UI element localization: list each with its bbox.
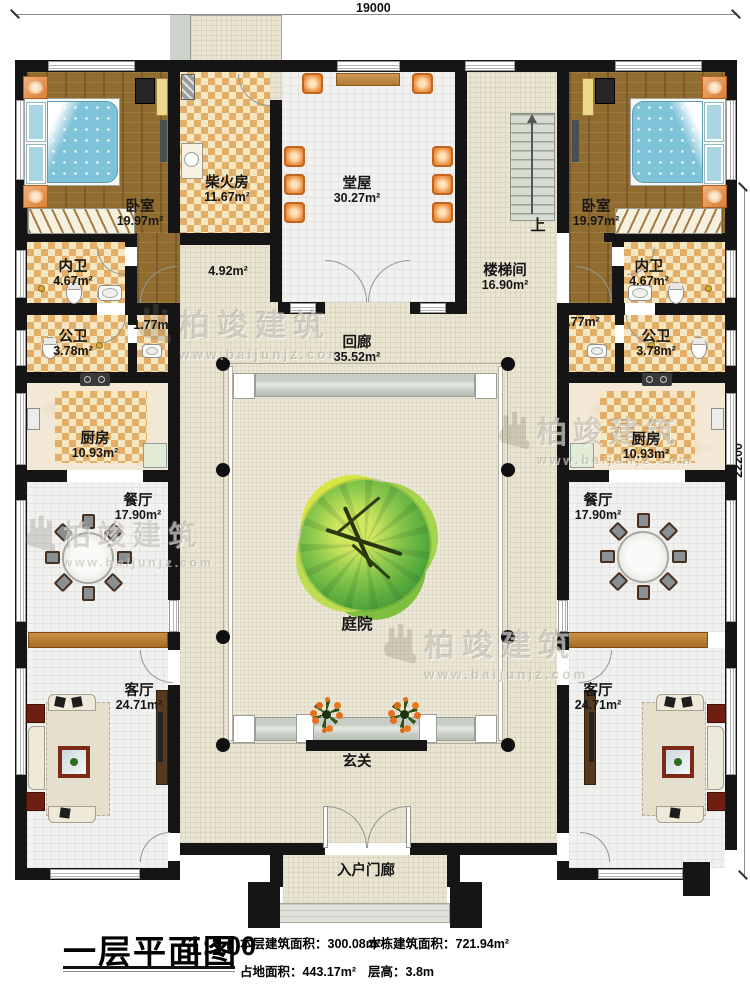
room-area: 17.90m² bbox=[115, 509, 162, 522]
stairs-up-label: 上 bbox=[530, 218, 545, 233]
room-name: 内卫 bbox=[53, 260, 93, 275]
nightstand bbox=[23, 76, 48, 99]
dimension-tick bbox=[738, 870, 748, 880]
side-table bbox=[26, 704, 45, 723]
room-name: 卧室 bbox=[573, 200, 620, 215]
potted-plant bbox=[306, 692, 346, 738]
room-label-foyer: 玄关 bbox=[343, 755, 372, 770]
room-label-dining-right: 餐厅 17.90m² bbox=[575, 494, 622, 522]
stat-value: 721.94m² bbox=[456, 937, 510, 951]
tv bbox=[572, 120, 579, 162]
window bbox=[726, 330, 736, 366]
porch-wall bbox=[447, 843, 460, 887]
sideboard-left bbox=[28, 632, 168, 648]
towel-hook bbox=[38, 285, 45, 292]
room-name: 厨房 bbox=[72, 432, 119, 447]
room-area: 3.78m² bbox=[636, 345, 676, 358]
wall bbox=[168, 685, 180, 833]
room-label-stairwell: 楼梯间 16.90m² bbox=[482, 264, 529, 292]
room-name: 公卫 bbox=[53, 330, 93, 345]
dimension-tick bbox=[738, 182, 748, 192]
sink bbox=[142, 344, 162, 358]
tv bbox=[589, 712, 594, 762]
room-label-hall: 堂屋 30.27m² bbox=[334, 177, 381, 205]
room-name: 餐厅 bbox=[115, 494, 162, 509]
sofa-pillow bbox=[664, 696, 676, 708]
window bbox=[726, 100, 736, 180]
firewood-sink bbox=[184, 152, 199, 167]
sofa-pillow bbox=[71, 696, 83, 708]
wall bbox=[125, 233, 137, 247]
counter bbox=[711, 408, 724, 430]
burner bbox=[646, 376, 653, 383]
terrace-pad bbox=[475, 373, 497, 399]
bed-pillow bbox=[705, 145, 723, 183]
room-area: 17.90m² bbox=[575, 509, 622, 522]
wall bbox=[683, 862, 710, 896]
column bbox=[501, 357, 515, 371]
stat-land-area: 占地面积：443.17m² bbox=[240, 961, 356, 980]
side-table bbox=[707, 704, 726, 723]
room-label-living-left: 客厅 24.71m² bbox=[116, 684, 163, 712]
room-area: 16.90m² bbox=[482, 279, 529, 292]
dining-table bbox=[62, 532, 114, 584]
foyer-threshold bbox=[306, 740, 427, 751]
dining-chair bbox=[45, 551, 60, 564]
window bbox=[726, 393, 736, 465]
wall bbox=[15, 303, 97, 315]
room-area: 30.27m² bbox=[334, 192, 381, 205]
room-area: 4.67m² bbox=[53, 275, 93, 288]
wall bbox=[180, 843, 325, 855]
window bbox=[169, 600, 179, 632]
courtyard-tree bbox=[300, 480, 430, 610]
hall-chair bbox=[284, 202, 305, 223]
courtyard-edge-right bbox=[498, 366, 503, 741]
shelf bbox=[582, 78, 594, 116]
wall bbox=[270, 100, 282, 302]
dining-chair bbox=[82, 514, 95, 529]
window bbox=[598, 869, 683, 879]
column bbox=[216, 463, 230, 477]
room-area: 3.78m² bbox=[53, 345, 93, 358]
bed-pillow bbox=[705, 103, 723, 141]
room-label-cloister: 回廊 35.52m² bbox=[334, 336, 381, 364]
wall bbox=[127, 303, 180, 315]
terrace-pad bbox=[475, 715, 497, 743]
column bbox=[501, 738, 515, 752]
altar-table bbox=[336, 73, 400, 86]
dresser bbox=[135, 78, 155, 104]
room-name: 堂屋 bbox=[334, 177, 381, 192]
burner bbox=[84, 376, 91, 383]
room-area: 19.97m² bbox=[117, 215, 164, 228]
potted-plant bbox=[384, 692, 424, 738]
sofa-pillow bbox=[681, 696, 693, 708]
nightstand bbox=[23, 185, 48, 208]
wall bbox=[557, 303, 625, 315]
side-table bbox=[26, 792, 45, 811]
dresser bbox=[595, 78, 615, 104]
room-label-public-bath-right: 公卫 3.78m² bbox=[636, 330, 676, 358]
title-underline-2 bbox=[63, 971, 235, 972]
toilet bbox=[691, 337, 707, 359]
courtyard-terrace-bottom bbox=[255, 717, 475, 741]
counter bbox=[27, 408, 40, 430]
wall bbox=[168, 861, 180, 868]
dimension-line-right bbox=[744, 188, 745, 878]
sofa-seat bbox=[48, 806, 96, 823]
room-area: 19.97m² bbox=[573, 215, 620, 228]
window bbox=[726, 500, 736, 622]
window bbox=[50, 869, 140, 879]
wall bbox=[557, 315, 569, 600]
dimension-line-top bbox=[15, 14, 737, 15]
room-name: 内卫 bbox=[629, 260, 669, 275]
appliance bbox=[181, 74, 195, 100]
column bbox=[501, 630, 515, 644]
hall-chair bbox=[432, 146, 453, 167]
stat-label: 占地面积： bbox=[240, 965, 303, 979]
burner bbox=[98, 376, 105, 383]
toilet bbox=[668, 282, 684, 304]
room-label-bedroom-left: 卧室 19.97m² bbox=[117, 200, 164, 228]
room-name: 回廊 bbox=[334, 336, 381, 351]
dining-chair bbox=[637, 585, 650, 600]
window bbox=[420, 303, 446, 313]
coffee-table bbox=[662, 746, 694, 778]
window bbox=[290, 303, 316, 313]
room-name: 卧室 bbox=[117, 200, 164, 215]
stat-label: 本栋建筑面积： bbox=[368, 937, 456, 951]
wall bbox=[168, 71, 180, 233]
wardrobe bbox=[615, 208, 722, 234]
title-underline bbox=[63, 966, 235, 969]
stat-building-area: 本栋建筑面积：721.94m² bbox=[368, 933, 509, 952]
window bbox=[726, 668, 736, 775]
plant-fruits bbox=[322, 710, 331, 719]
wall bbox=[615, 343, 624, 372]
sofa-pillow bbox=[54, 696, 66, 708]
room-name: 柴火房 bbox=[204, 176, 250, 191]
column bbox=[501, 463, 515, 477]
wall bbox=[557, 685, 569, 833]
room-area: 11.67m² bbox=[204, 191, 250, 204]
porch-steps bbox=[278, 903, 450, 923]
dining-chair bbox=[637, 513, 650, 528]
wall bbox=[685, 470, 725, 482]
sink bbox=[587, 344, 607, 358]
wall bbox=[168, 315, 180, 600]
room-name: 客厅 bbox=[575, 684, 622, 699]
coffee-table bbox=[58, 746, 90, 778]
wall bbox=[557, 861, 569, 868]
window bbox=[558, 600, 568, 632]
porch-column bbox=[248, 882, 280, 928]
room-area: 10.93m² bbox=[623, 448, 670, 461]
sink bbox=[98, 285, 122, 301]
hall-chair bbox=[302, 73, 323, 94]
room-area: 4.92m² bbox=[208, 265, 248, 278]
bed-pillow bbox=[27, 145, 45, 183]
room-area: 10.93m² bbox=[72, 447, 119, 460]
room-area: 35.52m² bbox=[334, 351, 381, 364]
room-label-pass-left: 1.77m² bbox=[133, 319, 173, 332]
room-area: 1.77m² bbox=[560, 316, 600, 329]
wall bbox=[612, 233, 624, 247]
wall bbox=[15, 470, 67, 482]
window bbox=[465, 61, 515, 71]
wall bbox=[168, 632, 180, 650]
table-plant bbox=[674, 758, 682, 766]
wall bbox=[557, 71, 569, 233]
column bbox=[216, 357, 230, 371]
sofa-seat bbox=[656, 694, 704, 711]
room-label-kitchen-left: 厨房 10.93m² bbox=[72, 432, 119, 460]
terrace-pad bbox=[233, 373, 255, 399]
towel-hook bbox=[705, 285, 712, 292]
hall-chair bbox=[412, 73, 433, 94]
bed-mattress bbox=[632, 101, 703, 183]
window bbox=[16, 500, 26, 622]
bed-mattress bbox=[47, 101, 118, 183]
room-label-firewood: 柴火房 11.67m² bbox=[204, 176, 250, 204]
plant-fruits bbox=[400, 710, 409, 719]
terrace-pad bbox=[233, 715, 255, 743]
room-area: 4.67m² bbox=[629, 275, 669, 288]
room-area: 24.71m² bbox=[116, 699, 163, 712]
fridge bbox=[570, 443, 594, 468]
dining-chair bbox=[82, 586, 95, 601]
room-label-kitchen-right: 厨房 10.93m² bbox=[623, 433, 670, 461]
wall bbox=[655, 303, 737, 315]
room-name: 楼梯间 bbox=[482, 264, 529, 279]
wall bbox=[557, 632, 569, 650]
fridge bbox=[143, 443, 167, 468]
sofa-pillow bbox=[669, 807, 680, 818]
hall-chair bbox=[432, 202, 453, 223]
stove bbox=[642, 373, 672, 386]
room-label-courtyard: 庭院 bbox=[341, 617, 372, 633]
window bbox=[337, 61, 400, 71]
stat-value: 3.8m bbox=[406, 965, 435, 979]
window bbox=[16, 250, 26, 298]
stat-floor-area: 本层建筑面积：300.08m² bbox=[240, 933, 381, 952]
hall-chair bbox=[284, 174, 305, 195]
side-table bbox=[707, 792, 726, 811]
room-label-pass-right: 1.77m² bbox=[560, 316, 600, 329]
window bbox=[48, 61, 135, 71]
sofa-seat bbox=[28, 726, 45, 790]
towel-hook bbox=[96, 342, 103, 349]
tv bbox=[160, 120, 167, 162]
window bbox=[16, 668, 26, 775]
floor-plan: 19000 22200 bbox=[0, 0, 750, 988]
tree-foliage-texture bbox=[300, 480, 430, 610]
table-plant bbox=[70, 758, 78, 766]
room-name: 客厅 bbox=[116, 684, 163, 699]
wall bbox=[615, 315, 624, 325]
room-label-porch: 入户门廊 bbox=[337, 864, 395, 879]
wall bbox=[180, 233, 282, 245]
room-label-living-right: 客厅 24.71m² bbox=[575, 684, 622, 712]
room-name: 厨房 bbox=[623, 433, 670, 448]
room-name: 公卫 bbox=[636, 330, 676, 345]
column bbox=[216, 738, 230, 752]
window bbox=[726, 250, 736, 298]
dining-chair bbox=[672, 550, 687, 563]
porch-column bbox=[450, 882, 482, 928]
burner bbox=[660, 376, 667, 383]
shelf bbox=[156, 78, 168, 116]
room-label-pass-center: 4.92m² bbox=[208, 265, 248, 278]
porch-wall bbox=[270, 843, 283, 887]
window bbox=[16, 330, 26, 366]
sideboard-right bbox=[567, 632, 708, 648]
wall bbox=[410, 843, 557, 855]
wall bbox=[27, 233, 136, 242]
nightstand bbox=[702, 185, 727, 208]
column bbox=[216, 630, 230, 644]
wall bbox=[455, 71, 467, 302]
stat-label: 层高： bbox=[368, 965, 406, 979]
stairs-up-arrow bbox=[527, 114, 537, 123]
tv bbox=[158, 712, 163, 762]
nightstand bbox=[702, 76, 727, 99]
stairs-direction-line bbox=[531, 120, 533, 214]
dining-chair bbox=[600, 550, 615, 563]
bed-pillow bbox=[27, 103, 45, 141]
window bbox=[615, 61, 702, 71]
room-area: 24.71m² bbox=[575, 699, 622, 712]
dining-table bbox=[617, 531, 669, 583]
stat-label: 本层建筑面积： bbox=[240, 937, 328, 951]
window bbox=[16, 393, 26, 465]
flue bbox=[170, 15, 191, 65]
stat-value: 443.17m² bbox=[303, 965, 357, 979]
room-label-dining-left: 餐厅 17.90m² bbox=[115, 494, 162, 522]
dining-chair bbox=[117, 551, 132, 564]
dimension-top: 19000 bbox=[356, 1, 391, 15]
sofa-seat bbox=[707, 726, 724, 790]
sofa-pillow bbox=[59, 807, 70, 818]
stove bbox=[80, 373, 110, 386]
room-label-inner-bath-right: 内卫 4.67m² bbox=[629, 260, 669, 288]
room-label-bedroom-right: 卧室 19.97m² bbox=[573, 200, 620, 228]
wall bbox=[128, 343, 137, 372]
hall-chair bbox=[284, 146, 305, 167]
room-name: 餐厅 bbox=[575, 494, 622, 509]
courtyard-terrace-top bbox=[255, 373, 475, 397]
wall bbox=[557, 372, 725, 383]
room-label-public-bath-left: 公卫 3.78m² bbox=[53, 330, 93, 358]
hall-chair bbox=[432, 174, 453, 195]
stat-storey-height: 层高：3.8m bbox=[368, 961, 434, 980]
room-area: 1.77m² bbox=[133, 319, 173, 332]
courtyard-edge-left bbox=[228, 366, 233, 741]
room-label-inner-bath-left: 内卫 4.67m² bbox=[53, 260, 93, 288]
